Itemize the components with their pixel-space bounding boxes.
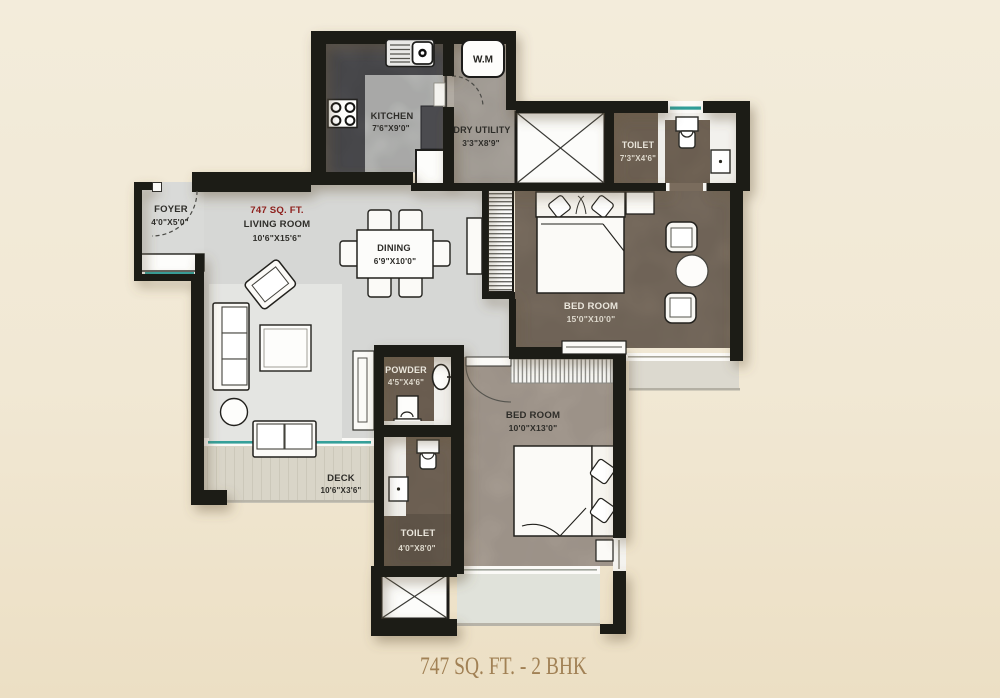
svg-text:7'6"X9'0": 7'6"X9'0"	[372, 123, 410, 133]
svg-text:3'3"X8'9": 3'3"X8'9"	[462, 138, 500, 148]
svg-text:TOILET: TOILET	[622, 140, 655, 150]
svg-text:POWDER: POWDER	[385, 365, 427, 375]
svg-text:TOILET: TOILET	[401, 528, 436, 539]
svg-text:10'6"X3'6": 10'6"X3'6"	[321, 486, 362, 495]
svg-text:FOYER: FOYER	[154, 204, 188, 215]
svg-text:BED ROOM: BED ROOM	[506, 410, 560, 421]
svg-text:DINING: DINING	[377, 243, 411, 253]
svg-text:10'0"X13'0": 10'0"X13'0"	[509, 423, 558, 433]
svg-text:7'3"X4'6": 7'3"X4'6"	[620, 154, 656, 163]
svg-text:747 SQ. FT.: 747 SQ. FT.	[250, 205, 303, 216]
svg-text:W.M: W.M	[473, 55, 493, 66]
svg-text:6'9"X10'0": 6'9"X10'0"	[374, 256, 416, 266]
svg-text:747 SQ. FT. - 2 BHK: 747 SQ. FT. - 2 BHK	[420, 653, 587, 680]
svg-text:DECK: DECK	[327, 473, 355, 484]
svg-text:DRY UTILITY: DRY UTILITY	[453, 125, 510, 135]
svg-text:LIVING ROOM: LIVING ROOM	[244, 219, 311, 230]
svg-text:4'5"X4'6": 4'5"X4'6"	[388, 378, 424, 387]
svg-text:4'0"X5'0": 4'0"X5'0"	[151, 217, 189, 227]
svg-text:BED ROOM: BED ROOM	[564, 301, 618, 312]
svg-text:4'0"X8'0": 4'0"X8'0"	[398, 543, 436, 553]
svg-text:KITCHEN: KITCHEN	[371, 111, 414, 121]
svg-text:10'6"X15'6": 10'6"X15'6"	[253, 233, 302, 243]
svg-text:15'0"X10'0": 15'0"X10'0"	[567, 314, 616, 324]
